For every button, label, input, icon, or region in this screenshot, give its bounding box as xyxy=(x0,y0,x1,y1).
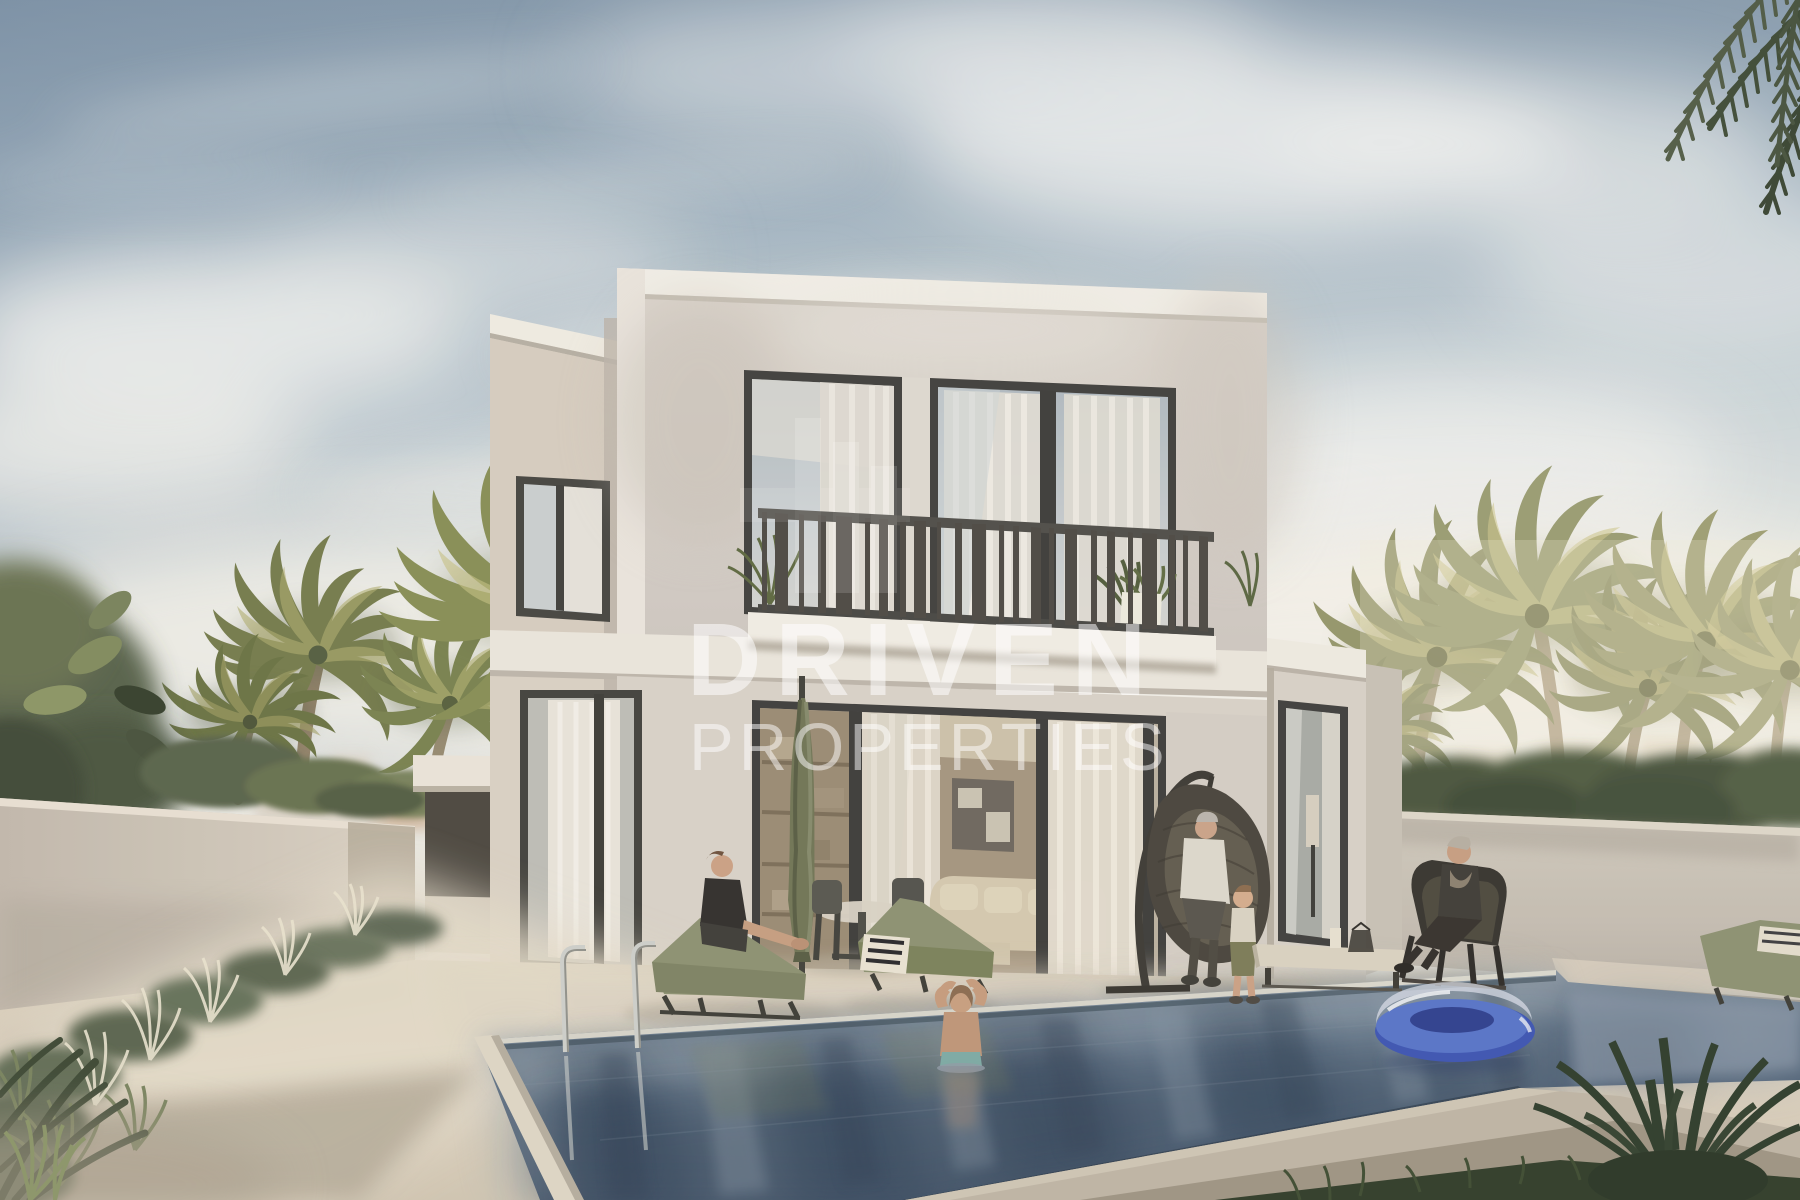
svg-text:DRIVEN: DRIVEN xyxy=(687,602,1160,717)
svg-text:PROPERTIES: PROPERTIES xyxy=(689,710,1170,785)
